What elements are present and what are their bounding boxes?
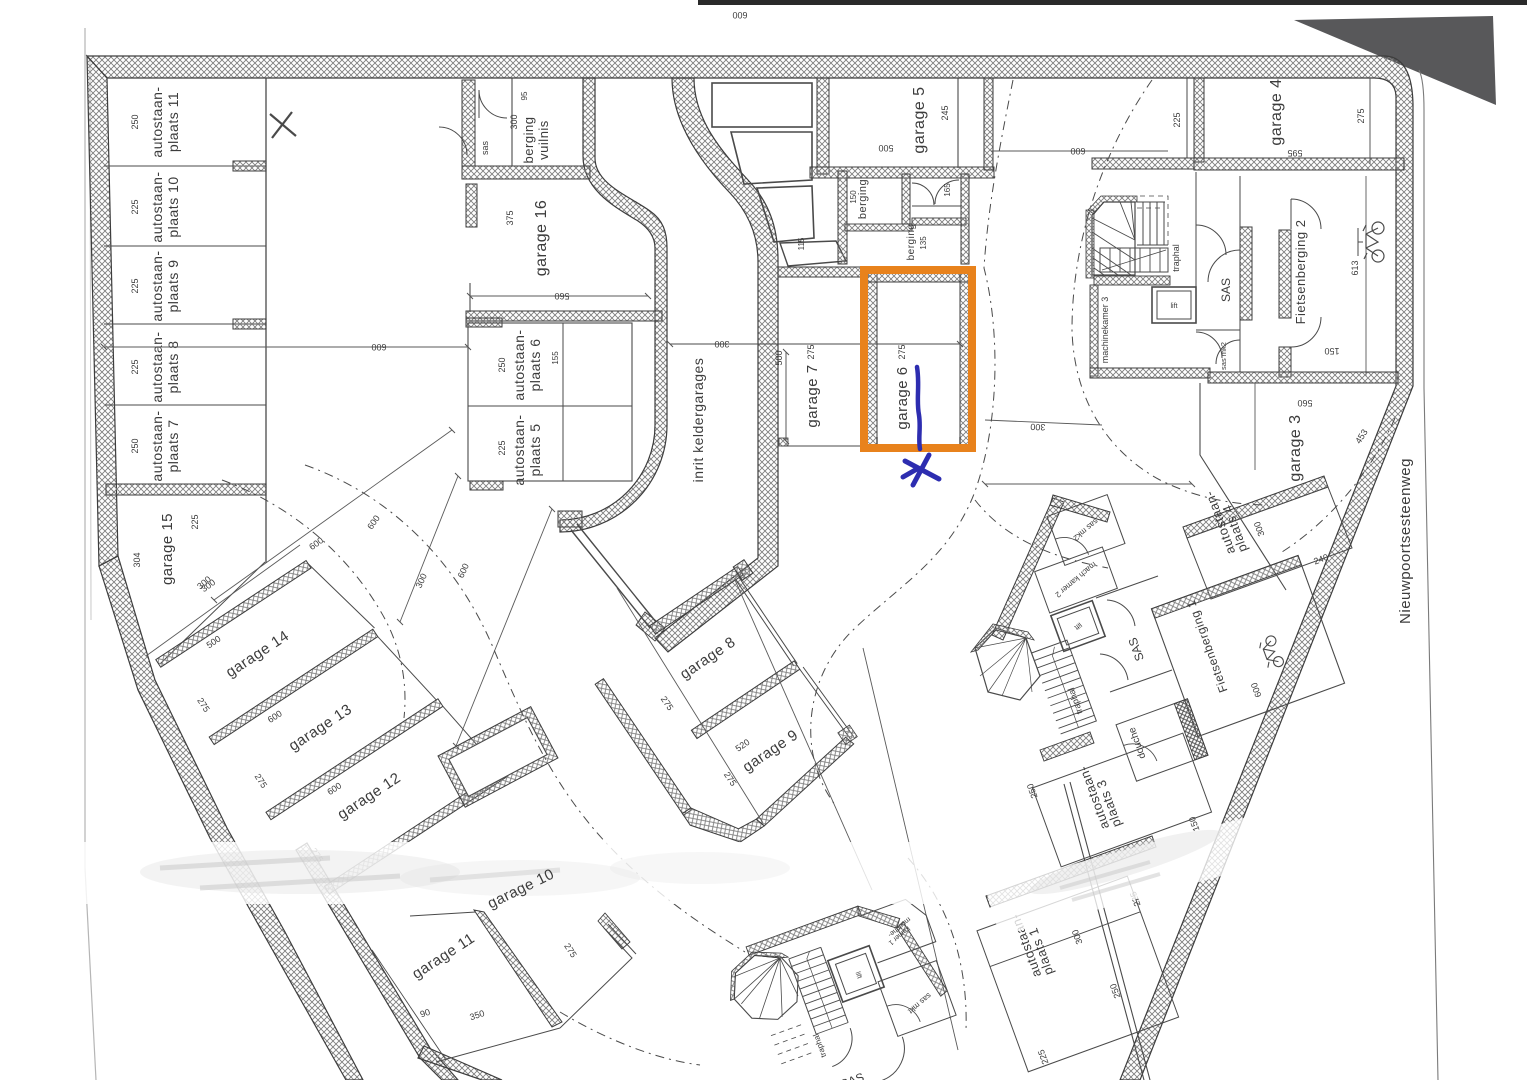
svg-text:plaats 7: plaats 7 xyxy=(165,419,181,472)
svg-text:595: 595 xyxy=(1287,148,1302,158)
svg-text:155: 155 xyxy=(551,351,560,365)
svg-text:berging: berging xyxy=(521,117,536,164)
svg-text:225: 225 xyxy=(190,514,200,529)
svg-text:250: 250 xyxy=(130,114,140,129)
svg-text:375: 375 xyxy=(505,210,515,225)
svg-text:vuilnis: vuilnis xyxy=(536,120,551,160)
svg-text:traphal: traphal xyxy=(1171,244,1181,272)
svg-text:autostaan-: autostaan- xyxy=(149,171,165,242)
svg-text:garage 5: garage 5 xyxy=(911,86,928,153)
svg-text:plaats 5: plaats 5 xyxy=(527,423,543,476)
svg-text:autostaan-: autostaan- xyxy=(511,414,527,485)
svg-text:275: 275 xyxy=(1356,108,1366,123)
svg-text:500: 500 xyxy=(774,350,784,365)
svg-text:250: 250 xyxy=(497,357,507,372)
svg-text:300: 300 xyxy=(509,114,519,129)
svg-text:sas: sas xyxy=(480,141,490,156)
svg-text:machinekamer 3: machinekamer 3 xyxy=(1100,297,1110,364)
svg-text:500: 500 xyxy=(878,143,893,153)
svg-text:560: 560 xyxy=(1297,398,1312,408)
svg-text:garage 16: garage 16 xyxy=(533,200,550,277)
svg-text:plaats 10: plaats 10 xyxy=(165,176,181,237)
svg-text:600: 600 xyxy=(371,342,386,352)
svg-text:225: 225 xyxy=(130,278,140,293)
svg-text:150: 150 xyxy=(1324,346,1339,356)
svg-text:autostaan-: autostaan- xyxy=(511,329,527,400)
svg-text:autostaan-: autostaan- xyxy=(149,86,165,157)
svg-text:garage 3: garage 3 xyxy=(1287,414,1304,481)
svg-text:245: 245 xyxy=(940,105,950,120)
svg-text:300: 300 xyxy=(714,339,729,349)
svg-text:250: 250 xyxy=(130,438,140,453)
svg-text:225: 225 xyxy=(497,440,507,455)
svg-text:berging: berging xyxy=(906,224,917,261)
svg-text:225: 225 xyxy=(1172,112,1182,127)
svg-text:Fietsenberging 2: Fietsenberging 2 xyxy=(1293,220,1308,325)
svg-text:Nieuwpoortsesteenweg: Nieuwpoortsesteenweg xyxy=(1397,458,1414,624)
svg-text:SAS: SAS xyxy=(1219,278,1233,302)
svg-text:autostaan-: autostaan- xyxy=(149,331,165,402)
svg-text:plaats 8: plaats 8 xyxy=(165,340,181,393)
svg-text:autostaan-: autostaan- xyxy=(149,410,165,481)
svg-text:275: 275 xyxy=(806,344,816,359)
svg-text:275: 275 xyxy=(897,344,907,359)
svg-text:304: 304 xyxy=(132,552,142,567)
svg-text:150: 150 xyxy=(849,190,858,204)
svg-text:berging: berging xyxy=(857,179,869,219)
svg-text:plaats 11: plaats 11 xyxy=(165,92,181,152)
svg-text:lift: lift xyxy=(1171,303,1178,310)
svg-text:garage 4: garage 4 xyxy=(1268,78,1285,145)
svg-text:165: 165 xyxy=(943,183,952,197)
svg-text:300: 300 xyxy=(1030,422,1045,433)
svg-text:135: 135 xyxy=(919,236,928,250)
svg-text:225: 225 xyxy=(130,359,140,374)
svg-text:95: 95 xyxy=(520,91,529,100)
svg-text:600: 600 xyxy=(1070,146,1085,156)
svg-text:autostaan-: autostaan- xyxy=(149,250,165,321)
svg-text:garage 6: garage 6 xyxy=(894,366,911,429)
svg-text:garage 15: garage 15 xyxy=(159,513,176,585)
svg-text:560: 560 xyxy=(554,291,569,301)
svg-text:inrit keldergarages: inrit keldergarages xyxy=(690,358,706,483)
svg-text:115: 115 xyxy=(797,237,806,250)
svg-text:plaats 9: plaats 9 xyxy=(165,259,181,312)
svg-text:garage 7: garage 7 xyxy=(804,364,821,427)
svg-text:613: 613 xyxy=(1350,260,1360,275)
svg-text:600: 600 xyxy=(732,10,747,20)
svg-text:plaats 6: plaats 6 xyxy=(527,338,543,391)
svg-text:225: 225 xyxy=(130,199,140,214)
